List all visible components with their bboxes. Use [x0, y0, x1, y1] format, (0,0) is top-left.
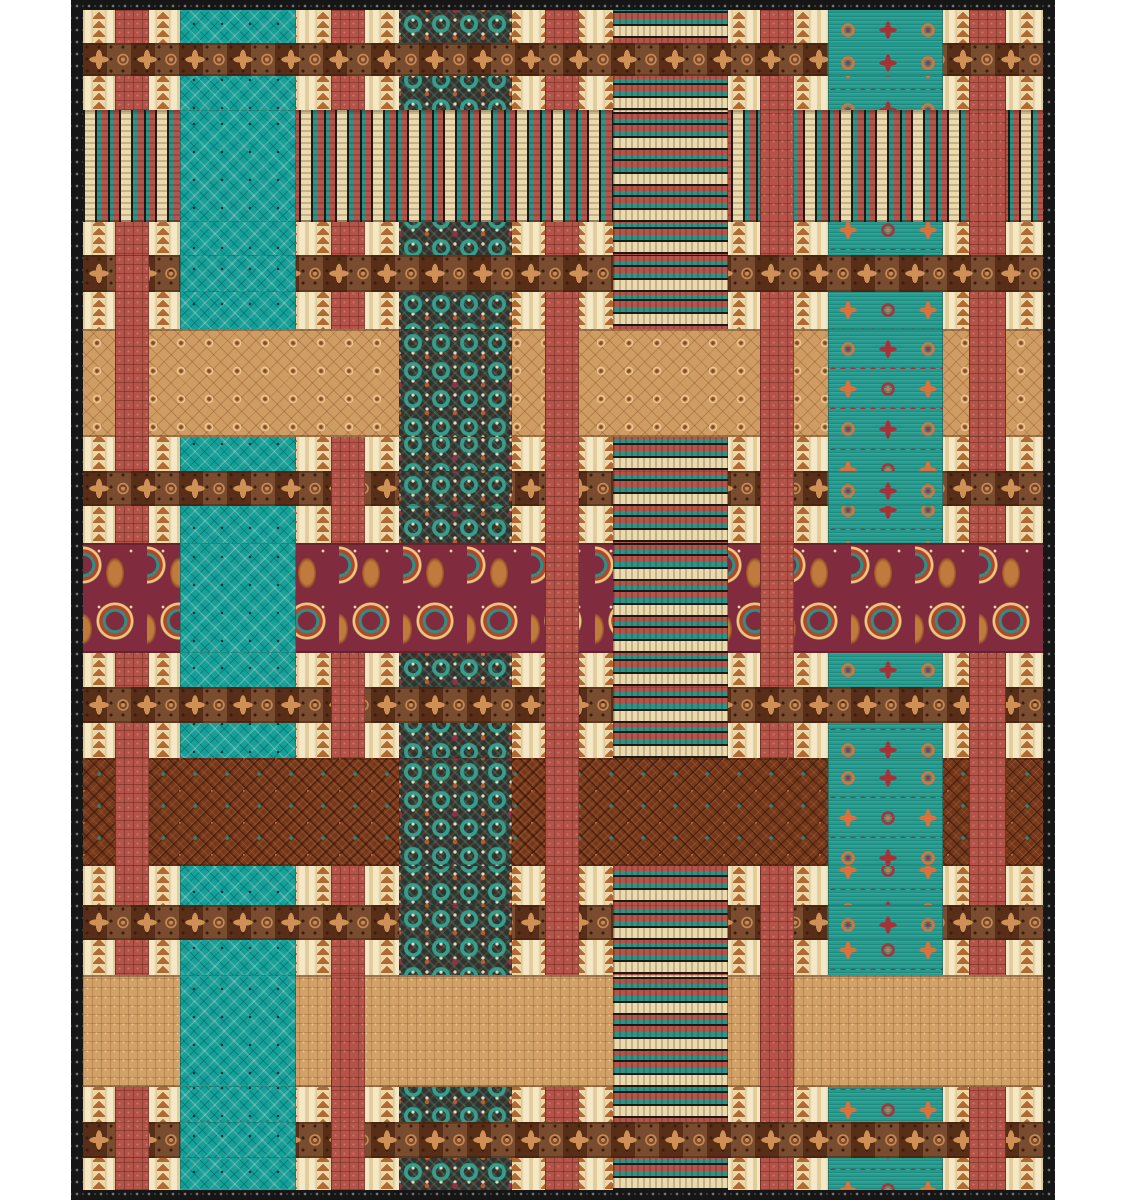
- weave-patch-rust-3-over-b5: [545, 471, 579, 506]
- weave-patch-rust-4-over-b5: [760, 471, 794, 506]
- weave-patch-rust-2-over-b7: [331, 687, 365, 723]
- weave-patch-rust-4-over-b6: [760, 543, 794, 653]
- weave-patch-serape-strip-over-b2: [613, 110, 728, 222]
- weave-patch-rust-5-over-b7: [969, 687, 1006, 723]
- weave-patch-teal-diamond-over-b2: [180, 110, 296, 222]
- weave-patch-rust-1-over-b3: [115, 255, 149, 292]
- weave-patch-serape-strip-over-b9: [613, 905, 728, 940]
- weave-patch-serape-strip-over-b5: [613, 471, 728, 506]
- weave-patch-teal-cross-over-b9: [399, 905, 512, 940]
- weave-patch-rust-1-over-b4: [115, 329, 149, 437]
- weave-patch-rust-4-over-b10: [760, 975, 794, 1087]
- weave-patch-rust-4-over-b4: [760, 329, 794, 437]
- weave-patch-rust-5-over-b11: [969, 1122, 1006, 1158]
- weave-patch-teal-sw-over-b9: [828, 905, 943, 940]
- weave-patch-rust-4-over-b9: [760, 905, 794, 940]
- weave-patch-rust-5-over-b8: [969, 758, 1006, 866]
- weave-patch-teal-diamond-over-b11: [180, 1122, 296, 1158]
- weave-patch-teal-diamond-over-b3: [180, 255, 296, 292]
- quilt-field: [83, 10, 1043, 1190]
- weave-patch-teal-sw-over-b8: [828, 758, 943, 866]
- quilt-mockup-page: [0, 0, 1125, 1200]
- weave-patch-rust-3-over-b8: [545, 758, 579, 866]
- weave-patch-teal-sw-over-b1: [828, 43, 943, 76]
- weave-patch-serape-strip-over-b10: [613, 975, 728, 1087]
- weave-patch-teal-diamond-over-b6: [180, 543, 296, 653]
- weave-patch-teal-cross-over-b4: [399, 329, 512, 437]
- weave-patch-rust-3-over-b4: [545, 329, 579, 437]
- weave-patch-rust-5-over-b2: [969, 110, 1006, 222]
- weave-patch-serape-strip-over-b3: [613, 255, 728, 292]
- weave-patch-teal-cross-over-b8: [399, 758, 512, 866]
- weave-patch-teal-cross-over-b5: [399, 471, 512, 506]
- weave-patch-serape-strip-over-b7: [613, 687, 728, 723]
- weave-patch-rust-3-over-b7: [545, 687, 579, 723]
- weave-patch-rust-1-over-b8: [115, 758, 149, 866]
- weave-patch-rust-1-over-b11: [115, 1122, 149, 1158]
- quilt: [71, 0, 1055, 1200]
- weave-patch-teal-sw-over-b5: [828, 471, 943, 506]
- weave-patch-rust-3-over-b9: [545, 905, 579, 940]
- weave-patch-teal-diamond-over-b10: [180, 975, 296, 1087]
- weave-patch-rust-4-over-b2: [760, 110, 794, 222]
- weave-patch-rust-2-over-b11: [331, 1122, 365, 1158]
- weave-patch-serape-strip-over-b6: [613, 543, 728, 653]
- weave-patch-rust-3-over-b6: [545, 543, 579, 653]
- weave-patch-teal-sw-over-b4: [828, 329, 943, 437]
- weave-patch-rust-2-over-b10: [331, 975, 365, 1087]
- weave-patch-rust-5-over-b4: [969, 329, 1006, 437]
- weave-patch-rust-2-over-b5: [331, 471, 365, 506]
